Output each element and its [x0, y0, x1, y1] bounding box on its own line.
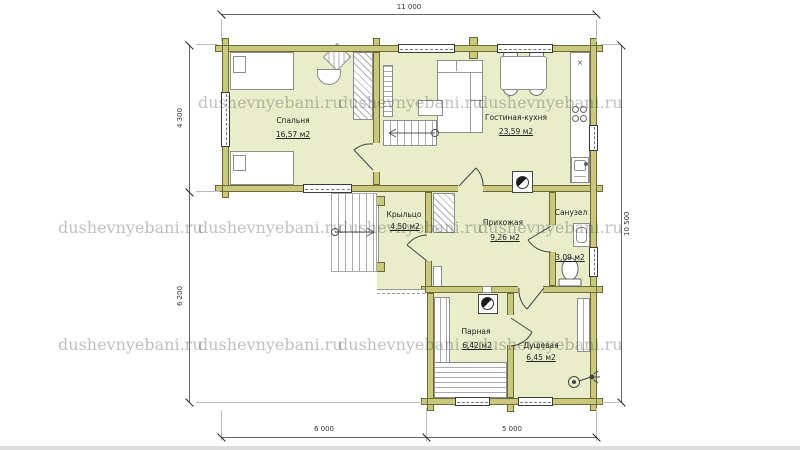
door-opening-hall-shower: [518, 286, 543, 293]
log-tab: [596, 185, 603, 192]
dim-left-upper-label: 4 300: [176, 96, 184, 140]
living-label: Гостиная-кухня: [466, 113, 566, 122]
watermark-text: dushevnyebani.ru: [478, 93, 623, 112]
dim-right-label: 10 500: [623, 200, 631, 248]
extension-line: [196, 44, 218, 45]
sauna-stove-circle: [481, 297, 494, 310]
bed-2-pillow: [233, 155, 246, 171]
log-tab: [427, 404, 434, 411]
watermark-text: dushevnyebani.ru: [338, 93, 483, 112]
dim-top-label: 11 000: [379, 3, 439, 11]
window-bedroom-bottom: [303, 184, 352, 193]
watermark-text: dushevnyebani.ru: [198, 218, 343, 237]
watermark-text: dushevnyebani.ru: [338, 335, 483, 354]
log-tab: [596, 286, 603, 293]
kitchen-faucet: [584, 162, 588, 166]
window-shower-bottom: [518, 397, 553, 406]
log-tab: [596, 45, 603, 52]
furnace-hall-circle: [516, 176, 529, 189]
dining-table: [500, 56, 547, 90]
hob-burner: [572, 115, 579, 122]
steam-bench-bottom: [434, 362, 507, 398]
door-opening-porch-hall: [425, 233, 432, 261]
bedroom-label: Спальня: [253, 116, 333, 125]
hob-marker: ×: [574, 58, 586, 67]
page-edge: [0, 446, 800, 450]
log-tab: [222, 191, 229, 198]
hob-burner: [580, 115, 587, 122]
extension-line: [596, 20, 597, 42]
window-top-1: [398, 44, 455, 53]
door-opening-bedroom: [373, 143, 380, 172]
living-area: 23,59 м2: [476, 127, 556, 136]
log-tab: [507, 404, 514, 412]
wc-label: Санузел: [541, 208, 601, 217]
bed-1-pillow: [233, 56, 246, 73]
wall-middle-bottom: [425, 286, 597, 293]
sauna-stove-chimney: [482, 286, 492, 293]
window-steam-bottom: [455, 397, 490, 406]
floor-plan-canvas: ×: [0, 0, 800, 450]
watermark-text: dushevnyebani.ru: [198, 93, 343, 112]
hall-cabinet: [433, 266, 442, 287]
kitchen-drainboard: [574, 173, 586, 181]
extension-line: [601, 44, 619, 45]
door-opening-living-hall: [458, 185, 483, 192]
dim-line-top: [222, 14, 597, 15]
porch-edge-bottom: [377, 289, 425, 294]
sofa-line: [456, 61, 457, 71]
watermark-text: dushevnyebani.ru: [478, 218, 623, 237]
sofa-line: [438, 72, 482, 73]
watermark-text: dushevnyebani.ru: [58, 335, 203, 354]
window-wc-right: [589, 247, 598, 277]
extension-line: [601, 402, 619, 403]
wc-area: 3,09 м2: [540, 253, 600, 262]
window-kitchen-right: [589, 125, 598, 151]
watermark-text: dushevnyebani.ru: [478, 335, 623, 354]
staircase: [383, 120, 437, 146]
dim-line-bottom: [222, 437, 597, 438]
wall-sauna-bottom: [427, 398, 597, 405]
dim-bottom-right-label: 5 000: [482, 425, 542, 433]
dim-left-lower-label: 6 200: [176, 274, 184, 318]
room-porch: [377, 192, 425, 290]
bedroom-area: 16,57 м2: [253, 130, 333, 139]
extension-line: [221, 20, 222, 42]
extension-line: [196, 402, 426, 403]
window-top-2: [497, 44, 553, 53]
watermark-text: dushevnyebani.ru: [58, 218, 203, 237]
shower-area: 6,45 м2: [506, 353, 576, 362]
dim-bottom-left-label: 6 000: [294, 425, 354, 433]
watermark-text: dushevnyebani.ru: [198, 335, 343, 354]
extension-line: [196, 191, 220, 192]
wall-main-bottom: [222, 185, 597, 192]
watermark-text: dushevnyebani.ru: [338, 218, 483, 237]
